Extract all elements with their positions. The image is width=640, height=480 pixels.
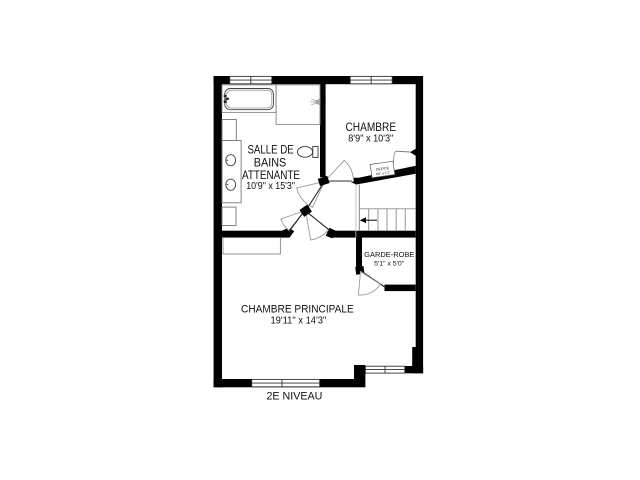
svg-text:10'9" x 15'3": 10'9" x 15'3" [246, 181, 295, 192]
svg-text:BAINS: BAINS [254, 157, 287, 170]
svg-text:5'1" x 5'0": 5'1" x 5'0" [374, 261, 404, 268]
svg-text:2E NIVEAU: 2E NIVEAU [266, 391, 322, 403]
svg-text:GARDE-ROBE: GARDE-ROBE [364, 250, 414, 259]
svg-text:19'11" x 14'3": 19'11" x 14'3" [270, 315, 326, 326]
svg-text:CHAMBRE: CHAMBRE [346, 121, 397, 134]
svg-text:CHAMBRE PRINCIPALE: CHAMBRE PRINCIPALE [241, 304, 354, 316]
svg-text:8'9" x 10'3": 8'9" x 10'3" [348, 134, 393, 145]
svg-text:SALLE DE: SALLE DE [247, 144, 293, 157]
